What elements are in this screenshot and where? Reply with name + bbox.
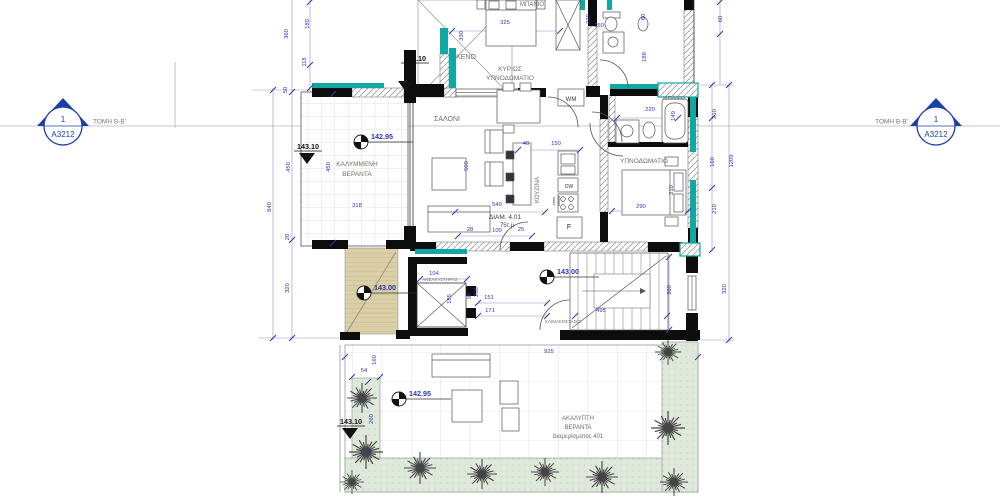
dimension-label: 54 — [361, 368, 368, 374]
level-benchmark-icon — [392, 392, 406, 406]
section-sheet: A3212 — [51, 130, 75, 139]
dimension-label: 210 — [712, 204, 718, 214]
dimension-label: 360 — [284, 29, 290, 39]
dimension-label: 20 — [285, 234, 291, 240]
room-label: ΥΠΝΟΔΩΜΑΤΙΟ — [486, 75, 534, 82]
level-value: 143.10 — [340, 417, 362, 426]
section-number: 1 — [934, 115, 939, 124]
dimension-label: 60 — [641, 14, 647, 20]
dimension-label: 210 — [669, 185, 675, 195]
room-label: DW — [565, 184, 574, 190]
dimension-label: 118 — [302, 57, 308, 66]
dimension-label: 104 — [429, 271, 439, 277]
floor-plan-canvas: 1 A3212 ΤΟΜΗ Β-Β' 1 A3212 ΤΟΜΗ Β-Β' ΚΕΝΟ… — [0, 0, 1000, 500]
dimension-label: 540 — [492, 202, 502, 208]
dimension-label: 50 — [283, 87, 289, 93]
dimension-label: 925 — [544, 349, 554, 355]
room-label: ΣΑΛΟΝΙ — [434, 116, 460, 123]
room-label: ΔΙΑΜ. 4.01 — [489, 214, 522, 221]
dimension-label: 171 — [485, 308, 495, 314]
room-label: below — [556, 196, 561, 207]
covered-veranda — [301, 92, 408, 246]
room-label: ΥΠΝΟΔΩΜΑΤΙΟ — [620, 158, 668, 165]
room-label: F — [567, 224, 571, 231]
dimension-label: 151 — [484, 295, 494, 301]
room-label: Διαμερίσματος 401 — [553, 434, 604, 440]
dimension-label: 318 — [352, 203, 362, 209]
dimension-label: 160 — [372, 355, 378, 365]
room-label: ΚΑΛΥΜΜΕΝΗ — [336, 161, 378, 168]
dimension-label: 140 — [671, 111, 677, 121]
dimension-label: 220 — [586, 14, 592, 24]
dimension-label: 320 — [285, 283, 291, 293]
dimension-label: 150 — [594, 23, 604, 29]
dimension-label: 260 — [369, 414, 375, 424]
room-label: ΚΥΡΙΩΣ — [498, 66, 522, 73]
room-label: WM — [566, 97, 577, 103]
section-sheet: A3212 — [924, 130, 948, 139]
level-value: 143.10 — [297, 142, 319, 151]
level-benchmark-icon — [354, 135, 368, 149]
section-marker-left: 1 A3212 ΤΟΜΗ Β-Β' — [37, 98, 126, 145]
section-marker-right: 1 A3212 ΤΟΜΗ Β-Β' — [875, 98, 962, 145]
dimension-label: 290 — [636, 204, 646, 210]
dimension-label: 1209 — [729, 155, 735, 168]
dimension-label: 500 — [464, 161, 470, 171]
level-value: 143.10 — [404, 54, 426, 63]
level-benchmark-icon — [357, 286, 371, 300]
dimension-label: 320 — [722, 284, 728, 294]
dimension-label: 28 — [467, 227, 473, 233]
dimension-label: 90 — [467, 293, 473, 299]
level-value: 142.95 — [371, 132, 393, 141]
dimension-label: 40 — [523, 141, 529, 147]
floor-plan-page: 1 A3212 ΤΟΜΗ Β-Β' 1 A3212 ΤΟΜΗ Β-Β' ΚΕΝΟ… — [0, 0, 1000, 500]
dimension-label: 325 — [500, 20, 510, 26]
section-label: ΤΟΜΗ Β-Β' — [875, 119, 908, 126]
dimension-label: 330 — [459, 31, 465, 41]
room-label: ΒΕΡΑΝΤΑ — [342, 171, 372, 178]
dimension-label: 220 — [645, 107, 655, 113]
room-label: ΒΕΡΑΝΤΑ — [564, 425, 591, 431]
level-benchmark-icon — [540, 270, 554, 284]
dimension-label: 260 — [474, 287, 480, 297]
room-label: ΚΕΝΟ — [456, 54, 476, 61]
dimension-label: 160 — [710, 157, 716, 167]
dimension-label: 185 — [447, 294, 453, 304]
dimension-label: 450 — [326, 162, 332, 172]
elevator — [417, 283, 466, 327]
room-label: ΑΝΕΛΚΥΣΤΗΡΑΣ — [422, 277, 458, 282]
room-label: ΜΠΑΝΙΟ — [663, 96, 686, 102]
dimension-label: 25 — [518, 227, 524, 233]
section-label: ΤΟΜΗ Β-Β' — [93, 119, 126, 126]
room-label: ΑΚΑΛΥΠΤΗ — [562, 416, 594, 422]
dimension-label: 100 — [492, 228, 502, 234]
room-label: ΜΠΑΝΙΟ — [520, 2, 544, 8]
dimension-label: 450 — [286, 162, 292, 172]
dimension-label: 360 — [667, 285, 673, 295]
level-value: 142.95 — [409, 389, 431, 398]
room-label: ΚΛΙΜΑΚΟΣΤΑΣΙΟ — [545, 319, 582, 324]
dimension-label: 495 — [596, 308, 606, 314]
dimension-label: 840 — [267, 202, 273, 212]
dimension-label: 60 — [718, 16, 724, 22]
dimension-label: 180 — [305, 19, 311, 29]
level-value: 143.00 — [374, 283, 396, 292]
dimension-label: 150 — [551, 141, 561, 147]
dimension-label: 188 — [642, 52, 648, 62]
dimension-label: 210 — [712, 109, 718, 119]
room-label: ΚΟΥΖΙΝΑ — [535, 177, 541, 203]
staircase — [570, 253, 668, 330]
section-number: 1 — [61, 115, 66, 124]
room-label: 75τ.μ — [500, 223, 515, 229]
level-value: 143.00 — [557, 267, 579, 276]
